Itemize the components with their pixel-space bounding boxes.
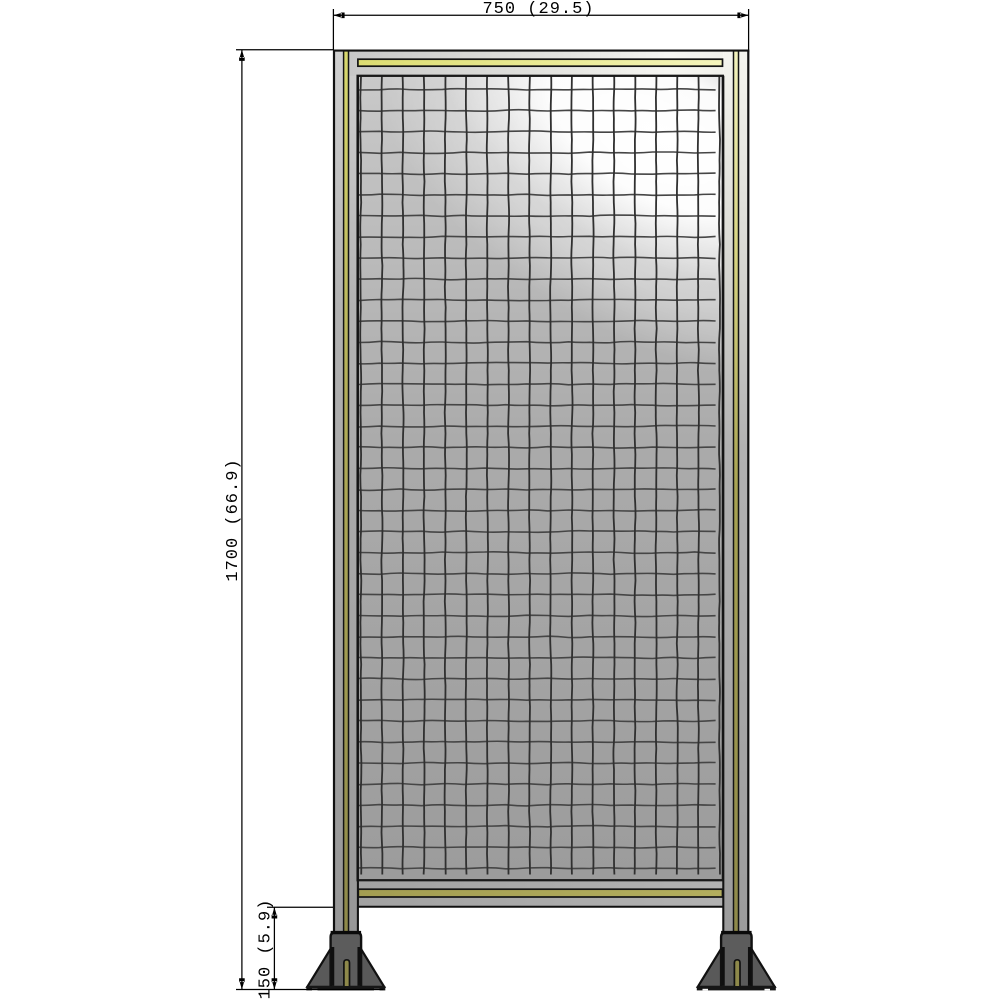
svg-text:150 (5.9): 150 (5.9) bbox=[257, 899, 276, 1000]
svg-text:750 (29.5): 750 (29.5) bbox=[482, 0, 594, 19]
svg-text:1700 (66.9): 1700 (66.9) bbox=[224, 458, 243, 581]
